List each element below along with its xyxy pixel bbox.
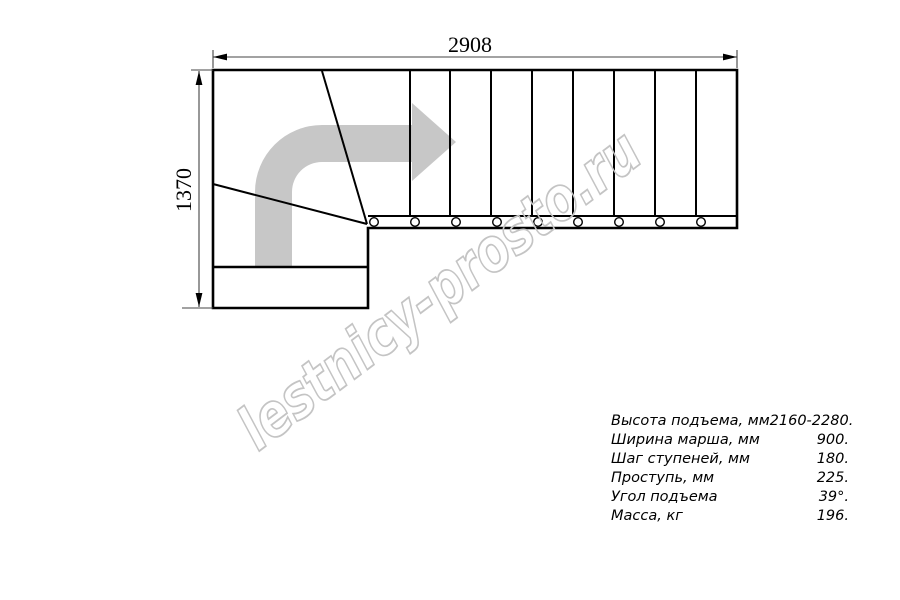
spec-row: Угол подъема 39°. [611,488,849,507]
baluster-circle [411,218,420,227]
spec-label: Проступь, мм [611,469,714,488]
spec-value: 196. [817,507,849,526]
baluster-circle [656,218,665,227]
spec-row: Шаг ступеней, мм 180. [611,450,849,469]
dimension-width: 2908 [213,32,737,68]
dimension-arrowhead [196,71,203,85]
spec-label: Шаг ступеней, мм [611,450,750,469]
spec-label: Угол подъема [611,488,718,507]
dimension-arrowhead [196,293,203,307]
dimension-height: 1370 [171,70,213,308]
spec-value: 2160-2280. [770,412,854,431]
specs-table: Высота подъема, мм 2160-2280. Ширина мар… [611,412,849,526]
spec-row: Масса, кг 196. [611,507,849,526]
dimension-arrowhead [723,54,737,61]
baluster-circle [370,218,379,227]
baluster-circle [697,218,706,227]
stair-drawing-page: 2908 1370 lestnicy-prosto.ru Высота подъ… [0,0,900,600]
spec-label: Высота подъема, мм [611,412,770,431]
dimension-height-label: 1370 [171,168,196,212]
baluster-circle [452,218,461,227]
spec-row: Высота подъема, мм 2160-2280. [611,412,849,431]
spec-row: Проступь, мм 225. [611,469,849,488]
spec-value: 900. [817,431,849,450]
dimension-arrowhead [213,54,227,61]
dimension-width-label: 2908 [448,32,492,57]
spec-value: 225. [817,469,849,488]
spec-value: 39°. [819,488,849,507]
spec-value: 180. [817,450,849,469]
spec-label: Ширина марша, мм [611,431,760,450]
spec-row: Ширина марша, мм 900. [611,431,849,450]
baluster-circle [615,218,624,227]
spec-label: Масса, кг [611,507,683,526]
